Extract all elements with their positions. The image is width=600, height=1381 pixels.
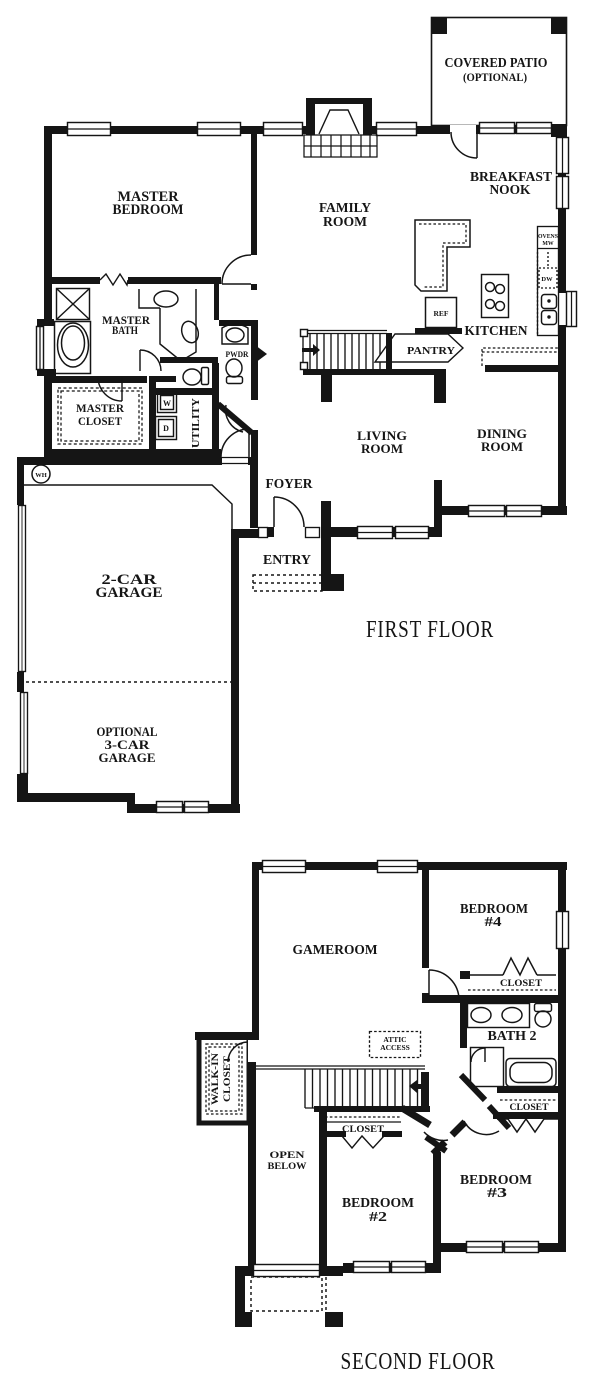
svg-text:WH: WH [35,472,47,479]
svg-text:COVERED PATIO: COVERED PATIO [445,55,548,70]
svg-text:PWDR: PWDR [226,349,250,359]
svg-text:CLOSET: CLOSET [500,979,543,989]
svg-text:PANTRY: PANTRY [407,345,455,357]
svg-text:DW: DW [541,276,553,283]
svg-text:#2: #2 [369,1209,387,1224]
svg-text:BELOW: BELOW [268,1162,308,1172]
svg-text:GAMEROOM: GAMEROOM [293,943,378,958]
svg-text:CLOSET: CLOSET [223,1055,233,1102]
svg-text:UTILITY: UTILITY [191,397,202,448]
svg-text:OPTIONAL: OPTIONAL [97,725,158,739]
svg-text:OVENS: OVENS [538,234,558,240]
svg-text:BEDROOM: BEDROOM [342,1195,414,1210]
svg-text:REF: REF [434,309,449,318]
svg-text:(OPTIONAL): (OPTIONAL) [463,70,527,84]
svg-text:MW: MW [542,241,553,247]
svg-text:FIRST FLOOR: FIRST FLOOR [366,617,494,643]
svg-text:FAMILY: FAMILY [319,201,371,216]
svg-text:KITCHEN: KITCHEN [465,324,528,339]
svg-text:BATH: BATH [112,325,138,337]
svg-text:GARAGE: GARAGE [99,751,156,765]
svg-text:MASTER: MASTER [76,403,125,415]
svg-text:CLOSET: CLOSET [342,1125,385,1135]
svg-text:NOOK: NOOK [490,182,531,197]
svg-text:BATH 2: BATH 2 [488,1028,537,1043]
svg-text:3-CAR: 3-CAR [105,738,151,752]
svg-text:ROOM: ROOM [361,441,403,456]
svg-text:ENTRY: ENTRY [263,552,311,567]
svg-text:CLOSET: CLOSET [78,416,122,428]
svg-text:ROOM: ROOM [481,439,523,454]
svg-text:GARAGE: GARAGE [96,585,163,601]
svg-text:ROOM: ROOM [323,215,367,230]
svg-text:WALK-IN: WALK-IN [211,1053,221,1105]
svg-text:#4: #4 [485,914,502,929]
svg-text:OPEN: OPEN [270,1151,305,1161]
svg-text:CLOSET: CLOSET [510,1103,550,1113]
svg-text:W: W [163,399,171,408]
svg-text:D: D [163,424,169,433]
svg-text:SECOND FLOOR: SECOND FLOOR [341,1349,496,1375]
svg-text:FOYER: FOYER [266,476,313,491]
svg-text:BEDROOM: BEDROOM [113,202,184,218]
svg-text:#3: #3 [487,1185,507,1200]
svg-text:ACCESS: ACCESS [380,1043,410,1052]
